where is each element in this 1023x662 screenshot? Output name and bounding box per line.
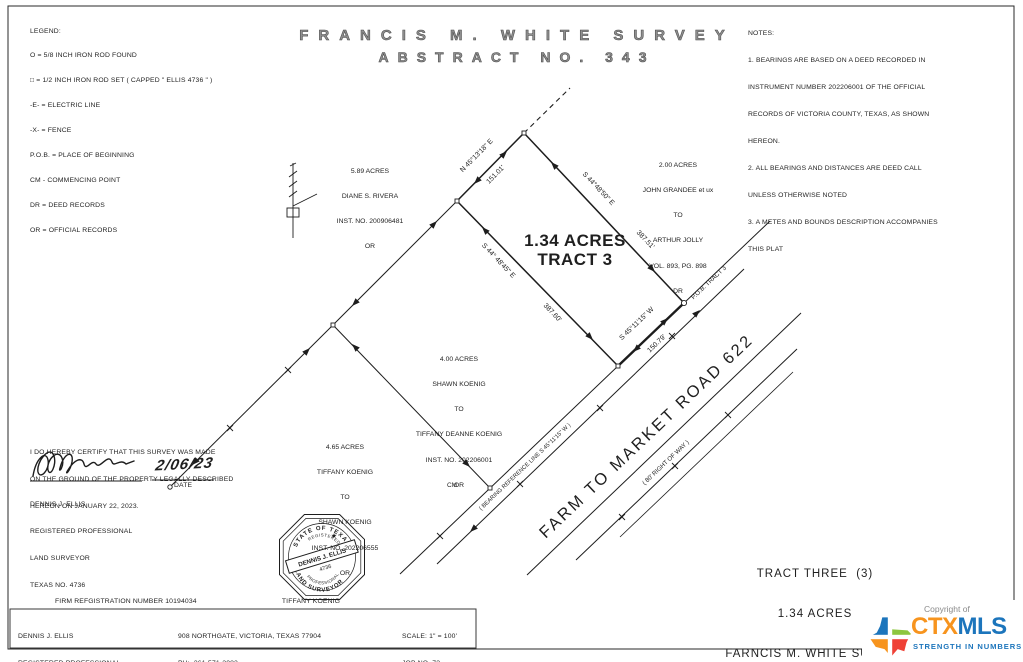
parcel-label-grandee: 2.00 ACRES JOHN GRANDEE et ux TO ARTHUR … (643, 145, 714, 313)
surveyor-identity: DENNIS J. ELLIS REGISTERED PROFESSIONAL … (30, 482, 132, 608)
date-label: DATE (174, 482, 192, 490)
ctxmls-wordmark: CTXMLS (911, 613, 1007, 641)
legend-heading: LEGEND: (30, 28, 212, 36)
texas-icon (868, 616, 912, 658)
ctx-text: CTX (911, 613, 958, 640)
parcel-label-tract3: 1.34 ACRES TRACT 3 (524, 231, 626, 269)
parcel-label-koenig-465: 4.65 ACRES TIFFANY KOENIG TO SHAWN KOENI… (312, 427, 379, 595)
legend-item: -E- = ELECTRIC LINE (30, 102, 212, 110)
electric-line-symbol (287, 163, 317, 238)
legend-item: O = 5/8 INCH IRON ROD FOUND (30, 52, 212, 60)
notes: NOTES: 1. BEARINGS ARE BASED ON A DEED R… (748, 11, 938, 272)
note-line: HEREON. (748, 137, 938, 146)
note-line: RECORDS OF VICTORIA COUNTY, TEXAS, AS SH… (748, 110, 938, 119)
parcel-label-rivera: 5.89 ACRES DIANE S. RIVERA INST. NO. 200… (337, 151, 404, 269)
note-line: UNLESS OTHERWISE NOTED (748, 191, 938, 200)
notes-heading: NOTES: (748, 29, 938, 38)
logo-tagline: STRENGTH IN NUMBERS (913, 642, 1022, 651)
bearing-sw: S 44° 48'45" E (480, 241, 517, 279)
legend-item: CM - COMMENCING POINT (30, 177, 212, 185)
title-block-address: 908 NORTHGATE, VICTORIA, TEXAS 77904 PH:… (178, 614, 321, 662)
title-block-scale: SCALE: 1" = 100' JOB NO. 73 DATE: 02/01/… (402, 614, 460, 662)
survey-plat-sheet: N 45°13'18" E 151.01' S 44°48'50" E 387.… (0, 0, 1023, 662)
legend-item: □ = 1/2 INCH IRON ROD SET ( CAPPED " ELL… (30, 77, 212, 85)
client-name: TIFFANY KOENIG (282, 598, 340, 606)
note-line: INSTRUMENT NUMBER 202206001 OF THE OFFIC… (748, 83, 938, 92)
note-line: THIS PLAT (748, 245, 938, 254)
parcel-label-koenig-4: 4.00 ACRES SHAWN KOENIG TO TIFFANY DEANN… (416, 339, 502, 507)
note-line: 2. ALL BEARINGS AND DISTANCES ARE DEED C… (748, 164, 938, 173)
legend-item: P.O.B. = PLACE OF BEGINNING (30, 152, 212, 160)
survey-title-line1: FRANCIS M. WHITE SURVEY (299, 27, 735, 44)
mls-text: MLS (958, 613, 1007, 640)
signature-date: 2/06/23 (154, 455, 215, 475)
legend: LEGEND: O = 5/8 INCH IRON ROD FOUND □ = … (30, 11, 212, 252)
legend-item: DR = DEED RECORDS (30, 202, 212, 210)
note-line: 3. A METES AND BOUNDS DESCRIPTION ACCOMP… (748, 218, 938, 227)
survey-title-line2: ABSTRACT NO. 343 (378, 49, 655, 65)
legend-item: OR = OFFICIAL RECORDS (30, 227, 212, 235)
firm-registration: FIRM REFGISTRATION NUMBER 10194034 (55, 598, 197, 606)
bearing-ne: S 44°48'50" E (581, 170, 617, 207)
title-block-surveyor: DENNIS J. ELLIS REGISTERED PROFESSIONAL … (18, 614, 120, 662)
distance-nw: 151.01' (485, 164, 506, 185)
note-line: 1. BEARINGS ARE BASED ON A DEED RECORDED… (748, 56, 938, 65)
legend-item: -X- = FENCE (30, 127, 212, 135)
ctxmls-logo: Copyright of CTXMLS STRENGTH IN NUMBERS (862, 600, 1023, 662)
